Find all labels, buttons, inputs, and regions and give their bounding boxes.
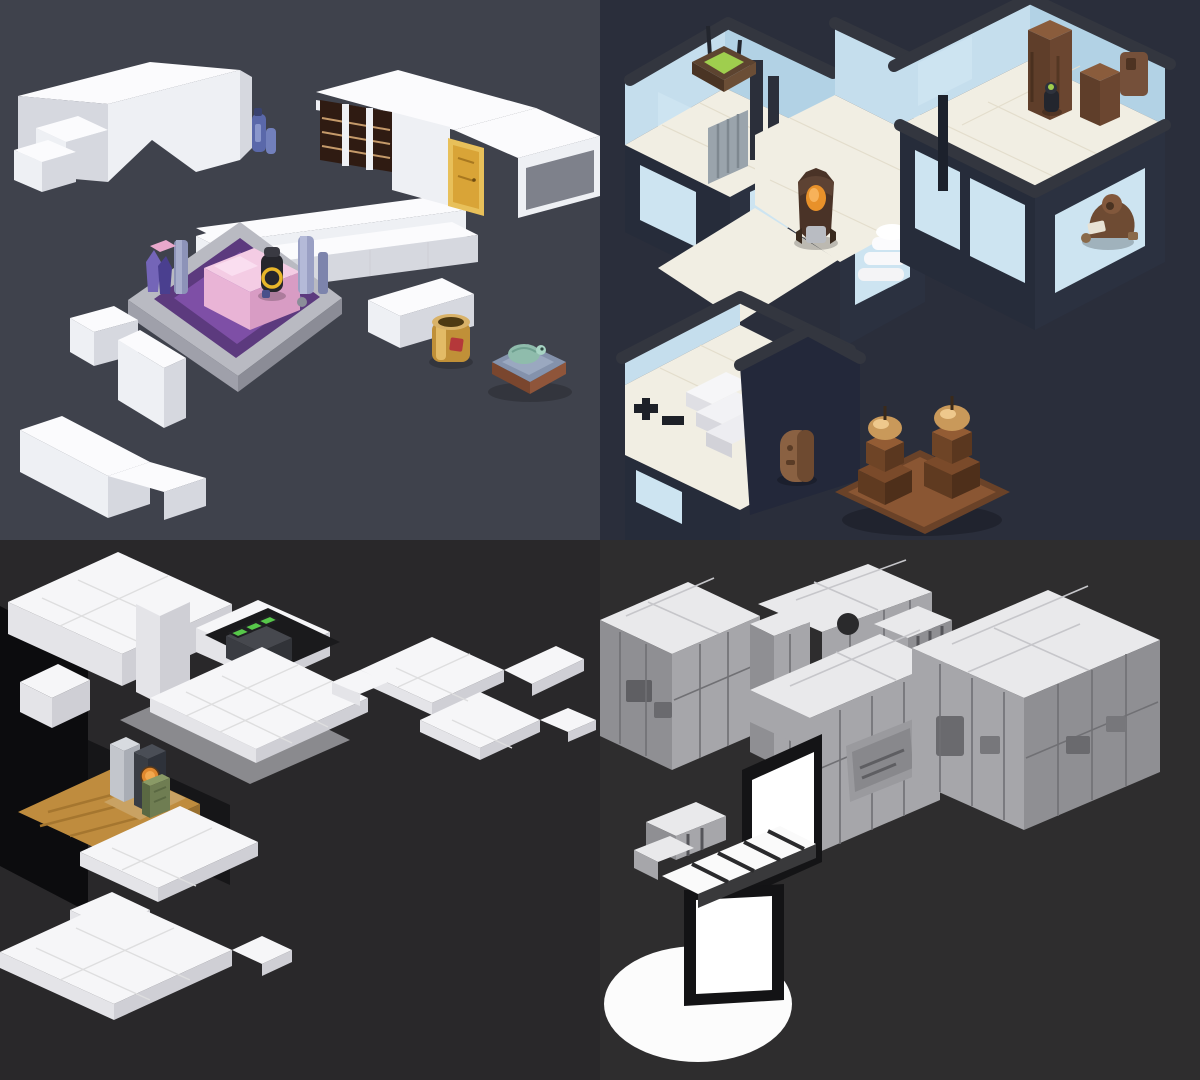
bookshelf	[320, 100, 392, 172]
green-cabinet	[142, 774, 170, 818]
porthole	[837, 613, 859, 635]
gold-door	[448, 138, 484, 216]
panel-bottom-right[interactable]	[600, 540, 1200, 1080]
image-grid	[0, 0, 1200, 1080]
screenshot-root	[0, 0, 1200, 1080]
panel-top-left[interactable]	[0, 0, 600, 540]
barrel-prop	[429, 314, 473, 369]
panel-bottom-left[interactable]	[0, 540, 600, 1080]
cloaked-robot	[794, 168, 838, 250]
panel-top-right[interactable]	[600, 0, 1200, 540]
capsule-prop	[777, 430, 817, 486]
